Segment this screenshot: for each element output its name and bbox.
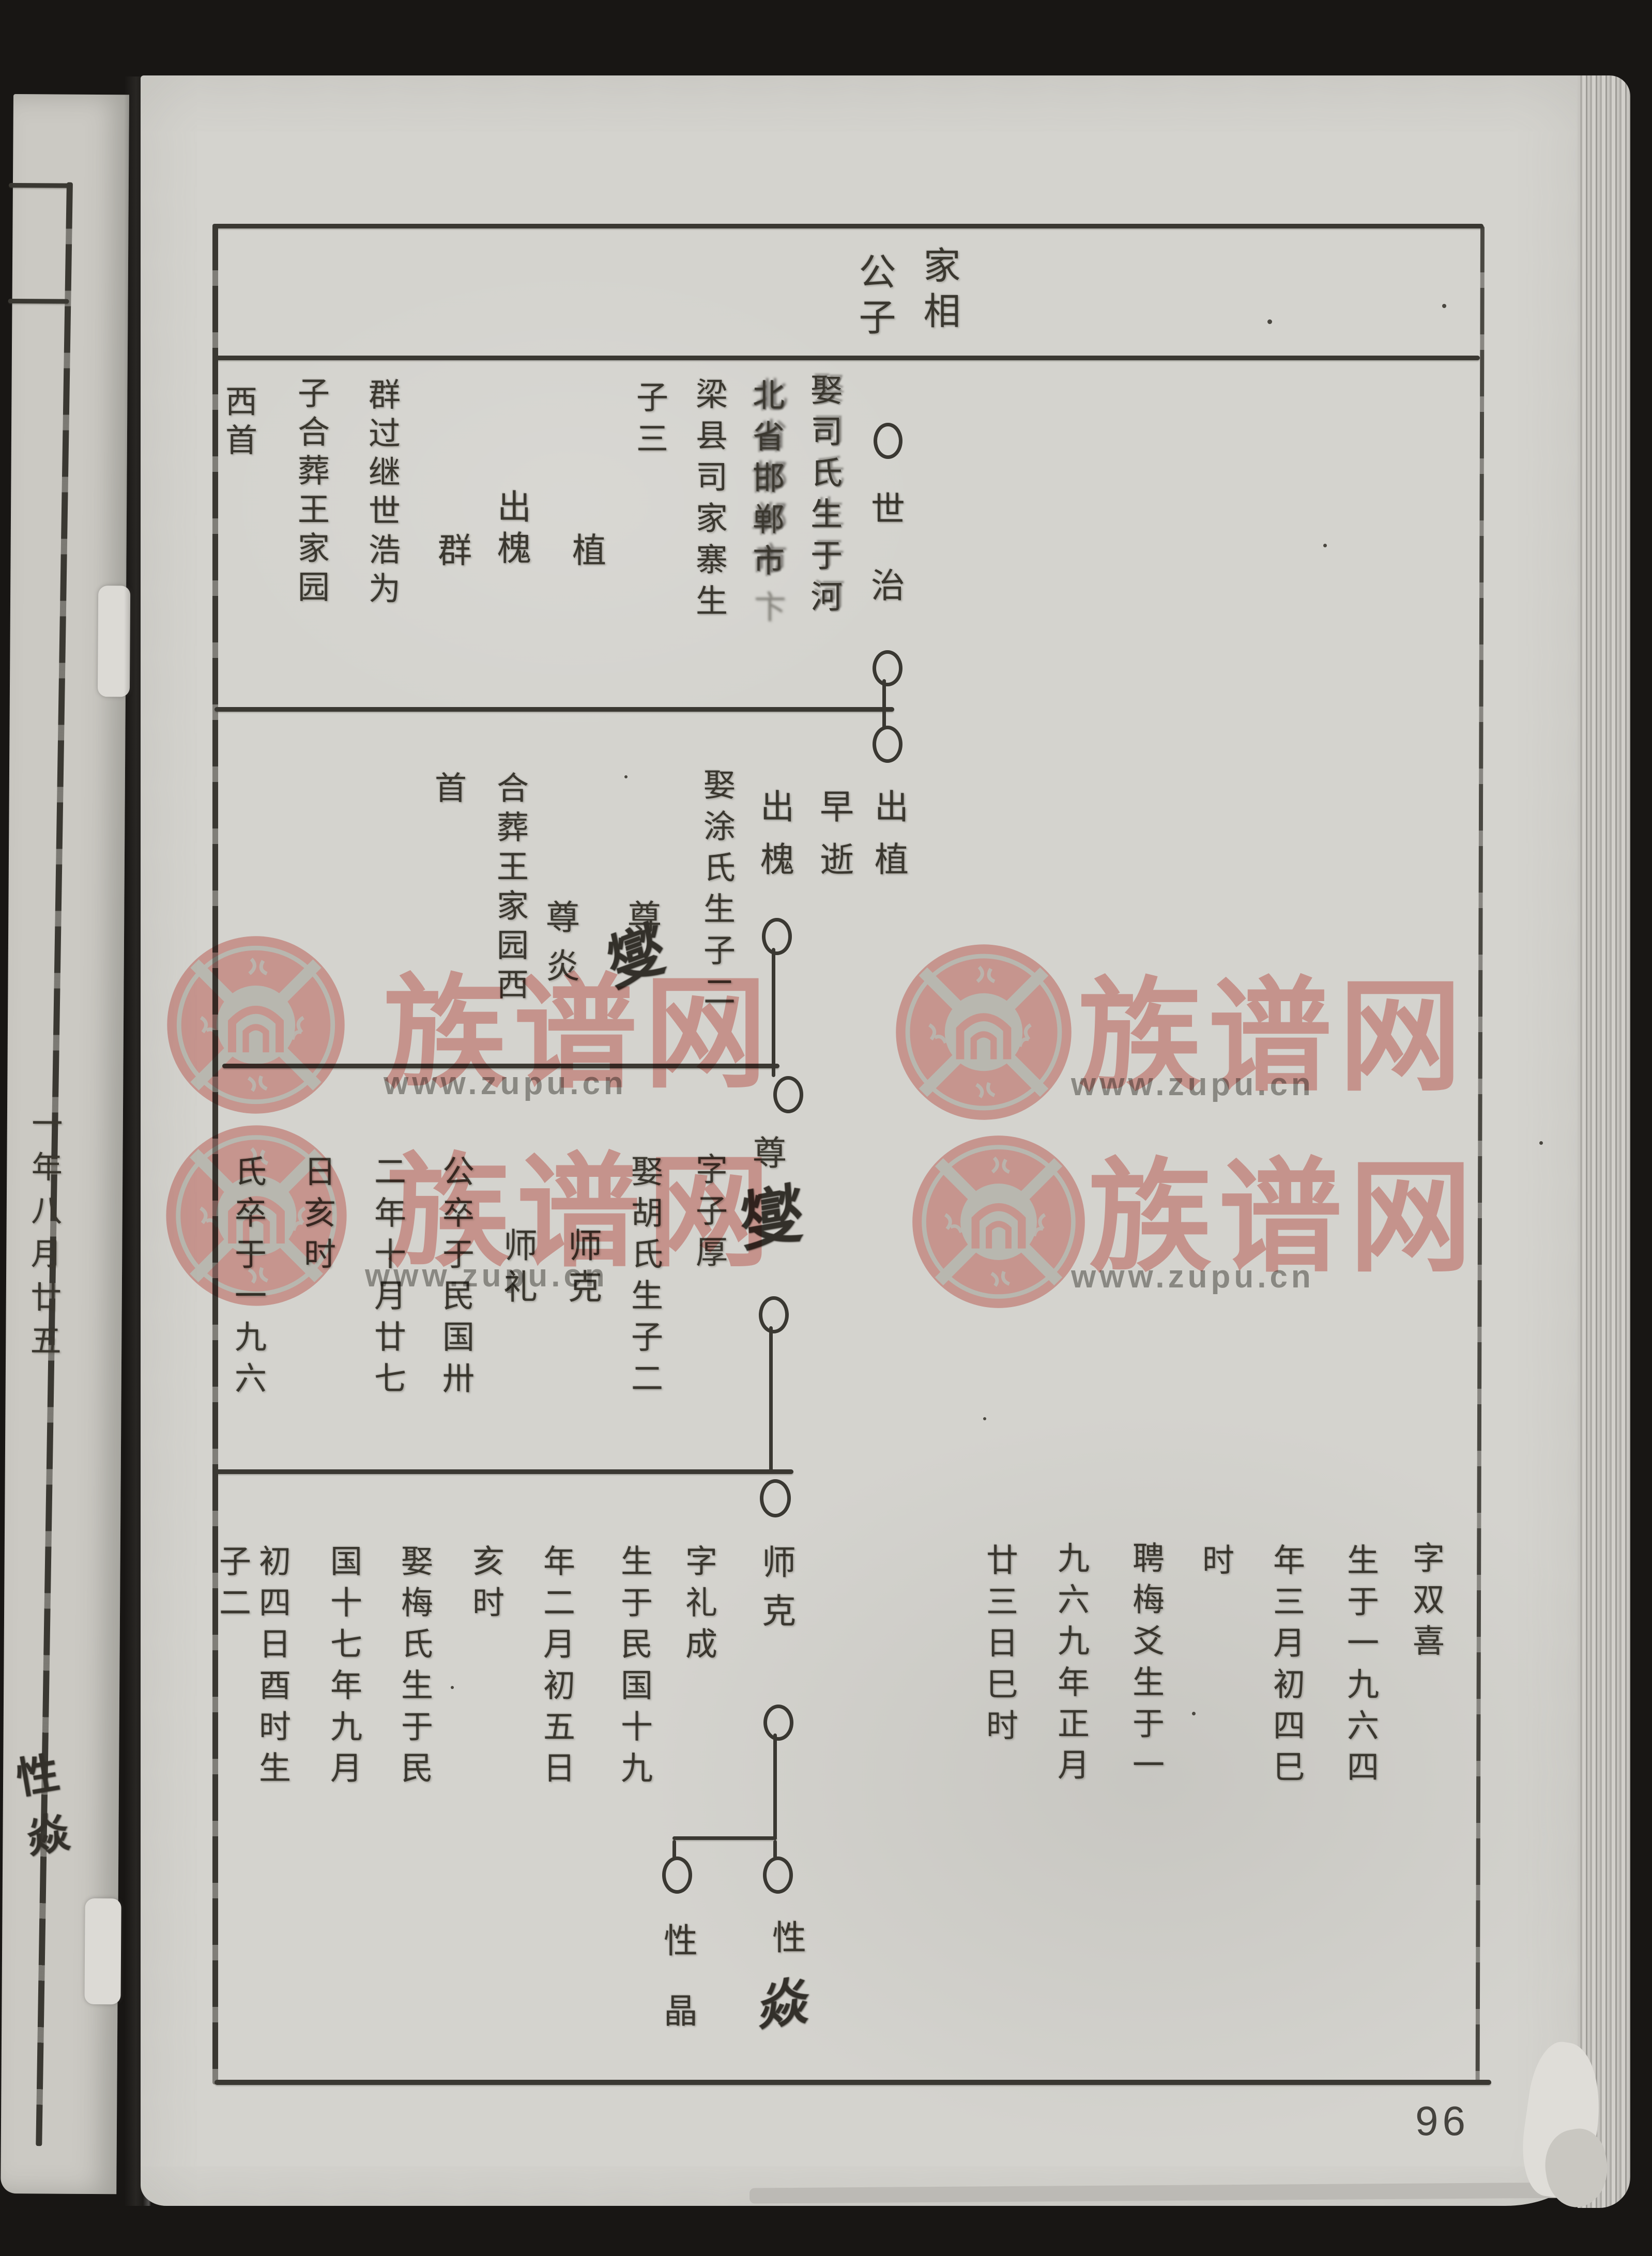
page-edge-texture — [1578, 75, 1630, 2208]
lineage-node-shizhi — [874, 423, 903, 459]
lineage-node — [760, 1479, 791, 1517]
zupu-logo-icon — [164, 933, 347, 1116]
gen4-detail-col: 生于民国十九 — [617, 1544, 649, 1792]
adjacent-date-text: 一年八月廿五 — [27, 1107, 60, 1368]
lineage-node-child-right — [763, 1856, 793, 1894]
gen4-child-right-handwritten: 焱 — [758, 1975, 810, 2034]
lineage-node-child-left — [662, 1856, 692, 1894]
lineage-node — [873, 726, 903, 763]
table-border-top — [215, 224, 1483, 228]
gen1-head-name: 世治 — [867, 491, 901, 644]
entry-right-col: 九六九年正月 — [1054, 1541, 1086, 1789]
lineage-node — [762, 918, 792, 955]
gen1-detail-col: 子三 — [633, 380, 665, 463]
gen1-detail-smudged-char: 卞 — [751, 590, 783, 632]
zupu-logo-icon — [893, 942, 1074, 1123]
gen1-son-name: 群 — [434, 532, 468, 574]
entry-right-col: 年三月初四巳 — [1269, 1543, 1302, 1791]
gen1-son-name: 出槐 — [494, 489, 528, 572]
gen1-note-col: 子合葬王家园 — [294, 376, 326, 609]
gen4-detail-col: 娶梅氏生于民 — [397, 1544, 430, 1792]
lineage-branch-line — [672, 1836, 777, 1840]
paper-speck — [1267, 319, 1272, 324]
gen4-detail-col: 国十七年九月 — [327, 1544, 359, 1792]
paper-speck — [1442, 304, 1446, 308]
zupu-logo-icon — [163, 1123, 349, 1309]
scanned-book-spread: 一年八月廿五 性焱 家相 公子 世治 娶司氏生于河 北省邯郸市 卞 梁县司家寨生… — [0, 0, 1652, 2256]
adjacent-hand-note: 性焱 — [9, 1751, 71, 1876]
watermark-url-text: www.zupu.cn — [1071, 1261, 1314, 1293]
entry-right-col: 廿三日巳时 — [983, 1543, 1015, 1750]
gen2-entry: 出植 — [871, 789, 905, 894]
paper-speck — [1192, 1712, 1196, 1715]
gen2-entry: 早逝 — [816, 789, 850, 894]
lineage-line — [773, 1840, 777, 1859]
paper-speck — [451, 1686, 454, 1689]
generation-separator-3 — [215, 1469, 793, 1474]
lineage-node — [763, 1705, 793, 1741]
header-title-left: 公子 — [855, 252, 892, 343]
watermark-brand-text: 族谱网 — [387, 1152, 777, 1275]
gen2-burial-col: 首 — [431, 771, 463, 810]
paper-speck — [624, 775, 628, 778]
lineage-node — [773, 1076, 803, 1113]
header-title-right: 家相 — [920, 246, 957, 337]
entry-right-col: 时 — [1199, 1543, 1231, 1585]
watermark-url-text: www.zupu.cn — [384, 1068, 627, 1100]
gen4-detail-col: 子二 — [216, 1544, 248, 1627]
gen1-detail-col: 娶司氏生于河 — [807, 373, 839, 621]
watermark-url-text: www.zupu.cn — [1071, 1069, 1314, 1101]
table-border-bottom — [215, 2080, 1491, 2085]
lineage-line — [773, 1733, 777, 1840]
book-page — [141, 75, 1583, 2206]
gen2-entry: 出槐 — [757, 789, 791, 894]
gen4-detail-col: 初四日酉时生 — [255, 1544, 287, 1792]
gen4-child-right-printed: 性 — [769, 1920, 803, 1961]
entry-right-col: 字双喜 — [1409, 1541, 1441, 1665]
paper-speck — [1539, 1141, 1543, 1145]
adjacent-table-line — [9, 183, 70, 188]
gen1-son-name: 植 — [569, 532, 603, 574]
gen4-child-left-name: 性晶 — [660, 1923, 694, 2063]
zupu-logo-icon — [910, 1133, 1088, 1311]
paper-speck — [983, 1417, 986, 1420]
lineage-line — [769, 1326, 773, 1472]
lineage-line — [882, 679, 886, 729]
gen4-detail-col: 年二月初五日 — [540, 1544, 572, 1792]
tape-fragment — [84, 1898, 121, 2004]
gen4-detail-col: 亥时 — [469, 1544, 501, 1627]
page-number: 96 — [1415, 2097, 1470, 2145]
gen1-detail-col: 梁县司家寨生 — [692, 377, 724, 625]
gen1-note-col: 西首 — [222, 385, 254, 462]
paper-speck — [1323, 544, 1327, 547]
gen1-note-col: 群过继世浩为 — [365, 378, 397, 610]
gen4-courtesy-col: 字礼成 — [682, 1544, 714, 1668]
entry-right-col: 生于一九六四 — [1343, 1543, 1375, 1791]
gen4-head-name: 师克 — [758, 1544, 792, 1641]
gen1-detail-col: 北省邯郸市 — [749, 378, 781, 585]
lineage-line — [672, 1840, 676, 1859]
lineage-node — [873, 650, 903, 686]
adjacent-page-strip: 一年八月廿五 性焱 — [1, 94, 129, 2194]
adjacent-table-line — [8, 299, 69, 304]
watermark-url-text: www.zupu.cn — [365, 1260, 608, 1292]
header-separator — [215, 356, 1480, 360]
lineage-node — [759, 1296, 789, 1333]
generation-separator-1 — [215, 707, 894, 712]
entry-right-col: 聘梅爻生于一 — [1129, 1541, 1161, 1789]
